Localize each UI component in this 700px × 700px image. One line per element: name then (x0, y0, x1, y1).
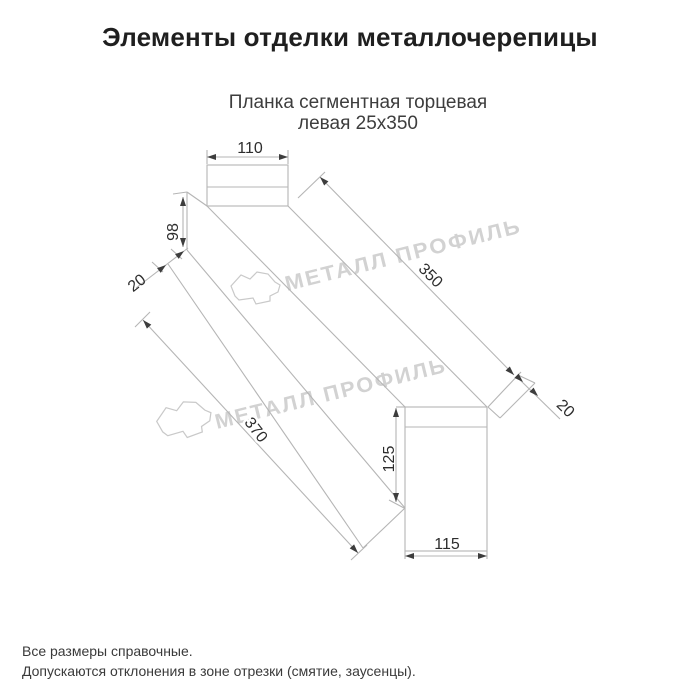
cloud-logo-icon (231, 272, 280, 304)
footer-note-2: Допускаются отклонения в зоне отрезки (с… (22, 661, 416, 681)
dim-label-top-width: 110 (237, 140, 263, 157)
top-flange-near-edge (207, 206, 405, 407)
footer-notes: Все размеры справочные. Допускаются откл… (22, 641, 416, 681)
dim-label-left-height: 98 (165, 223, 182, 241)
dim-label-left-hem: 20 (125, 271, 150, 295)
watermark-text: МЕТАЛЛ ПРОФИЛЬ (283, 215, 524, 296)
dim-label-end-height: 125 (381, 446, 398, 473)
cloud-logo-icon (155, 398, 214, 441)
dim-label-right-hem: 20 (553, 396, 578, 421)
bottom-tip-edge (363, 508, 405, 548)
dim-label-end-width: 115 (434, 536, 460, 553)
dimension-lines (135, 150, 560, 560)
dim-label-top-length: 350 (415, 260, 446, 291)
technical-drawing: МЕТАЛЛ ПРОФИЛЬ МЕТАЛЛ ПРОФИЛЬ (0, 0, 700, 700)
footer-note-1: Все размеры справочные. (22, 641, 416, 661)
watermark-top: МЕТАЛЛ ПРОФИЛЬ (231, 215, 524, 304)
strip-outline (168, 165, 535, 551)
bottom-end-section (405, 407, 487, 551)
top-end-section (207, 165, 288, 206)
dim-line-20-right (517, 377, 560, 419)
